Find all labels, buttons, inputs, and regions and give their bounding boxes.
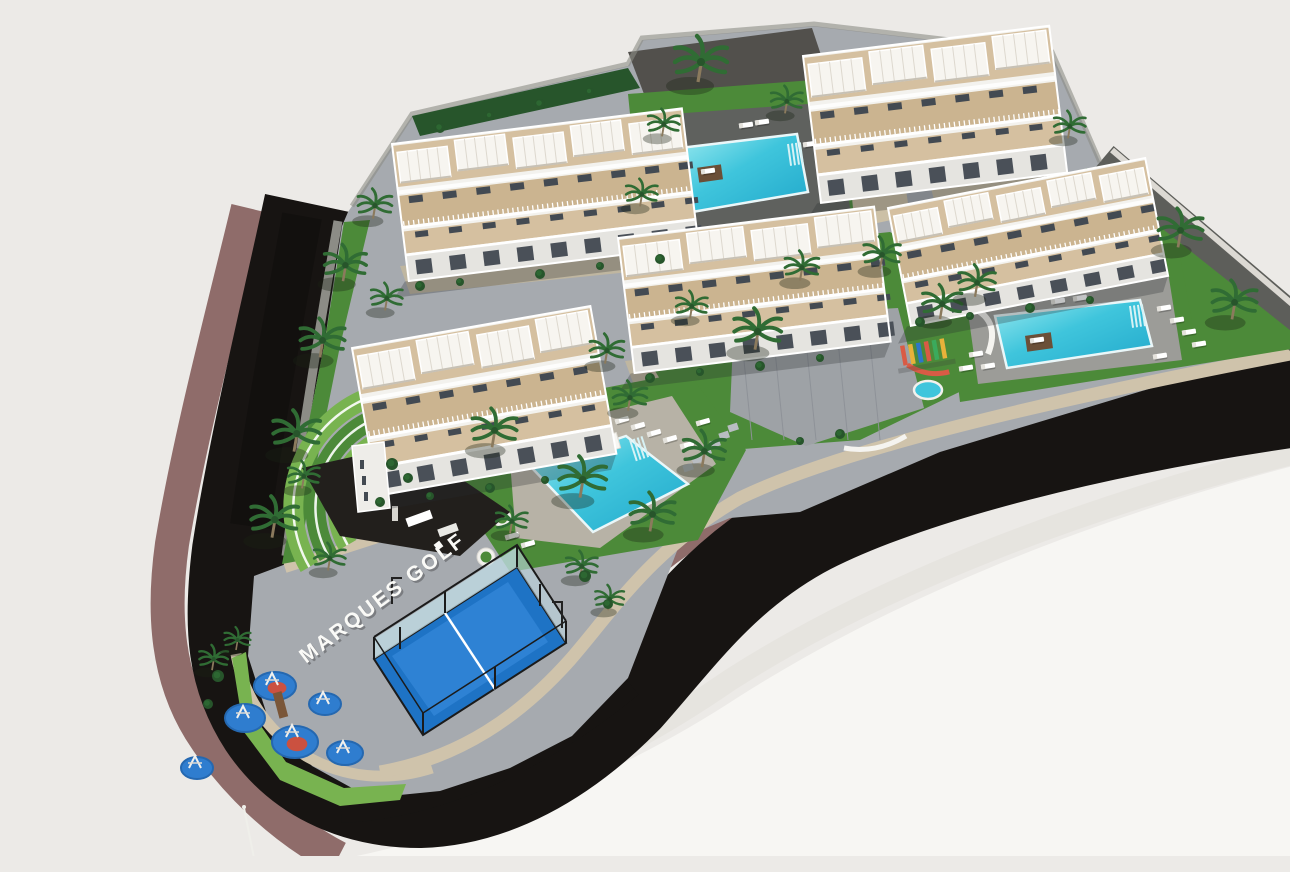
- aerial-render: MARQUES GOLF MARQUES GOLF: [40, 16, 1290, 856]
- scene-svg: MARQUES GOLF MARQUES GOLF: [40, 16, 1290, 856]
